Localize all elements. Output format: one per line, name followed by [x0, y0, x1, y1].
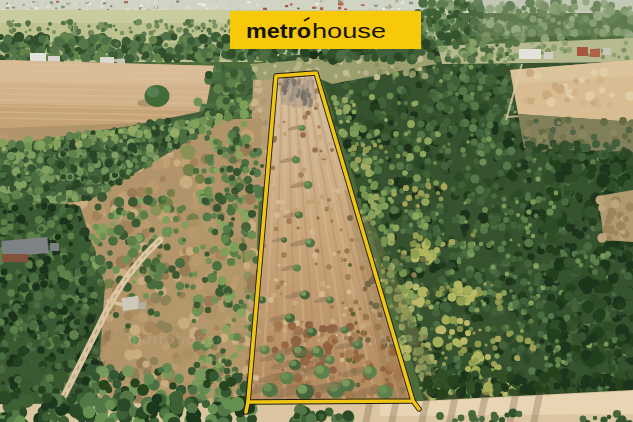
svg-text:metro: metro: [246, 20, 311, 42]
svg-text:metrohouse: metrohouse: [320, 330, 419, 347]
svg-text:metrohouse: metrohouse: [128, 330, 227, 347]
svg-text:house: house: [312, 20, 386, 42]
